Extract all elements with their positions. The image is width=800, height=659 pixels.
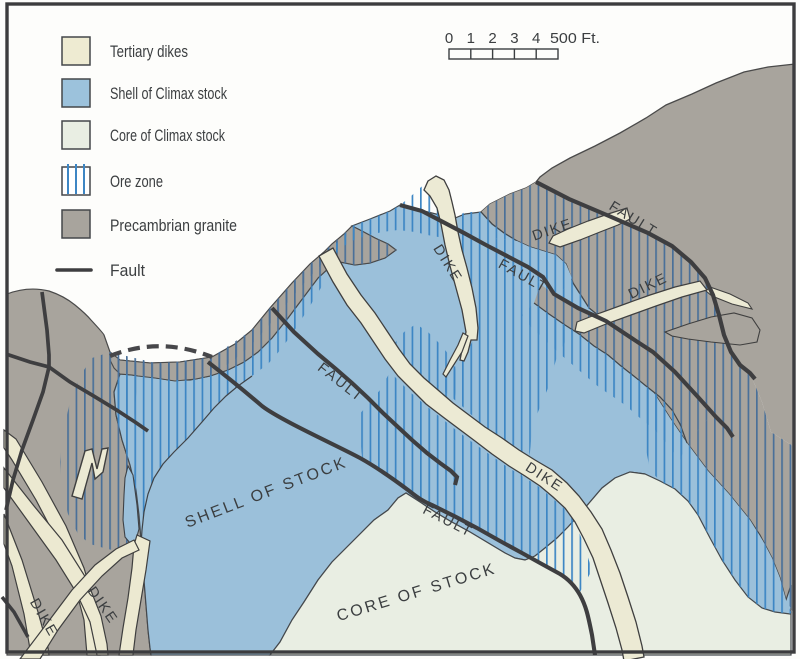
svg-text:2: 2 <box>488 30 496 47</box>
svg-text:Core of Climax stock: Core of Climax stock <box>110 127 226 145</box>
svg-text:Precambrian granite: Precambrian granite <box>110 217 237 235</box>
svg-text:3: 3 <box>510 30 518 47</box>
svg-text:Shell of Climax stock: Shell of Climax stock <box>110 85 228 103</box>
svg-text:0: 0 <box>445 30 453 47</box>
svg-text:500 Ft.: 500 Ft. <box>550 30 600 47</box>
svg-text:1: 1 <box>467 30 475 47</box>
svg-text:Ore zone: Ore zone <box>110 173 163 191</box>
svg-text:Fault: Fault <box>110 262 145 280</box>
svg-text:Tertiary dikes: Tertiary dikes <box>110 43 188 61</box>
svg-text:4: 4 <box>532 30 540 47</box>
